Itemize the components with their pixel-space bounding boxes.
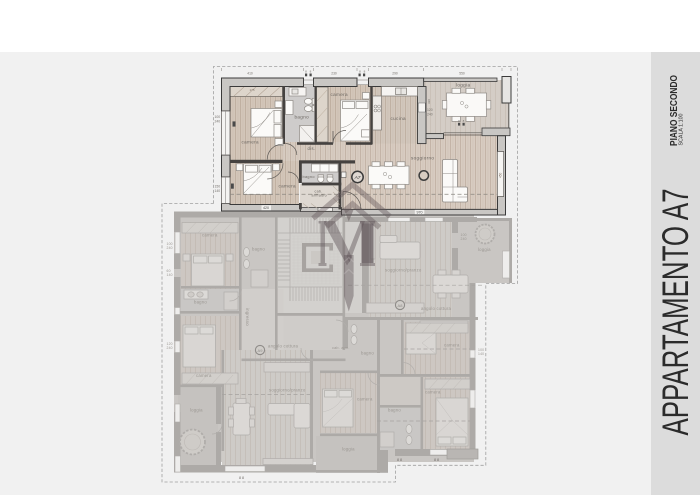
svg-text:cucina: cucina bbox=[391, 116, 406, 121]
svg-text:140: 140 bbox=[167, 273, 173, 277]
svg-text:camera: camera bbox=[357, 397, 373, 402]
svg-text:loggia: loggia bbox=[342, 447, 355, 452]
svg-text:420: 420 bbox=[263, 206, 269, 210]
svg-text:410: 410 bbox=[247, 72, 253, 76]
svg-text:loggia: loggia bbox=[190, 408, 203, 413]
svg-text:240: 240 bbox=[461, 237, 467, 241]
svg-text:SCALA 1:100: SCALA 1:100 bbox=[679, 113, 685, 145]
svg-text:camera: camera bbox=[202, 233, 218, 238]
svg-text:8 8: 8 8 bbox=[239, 476, 244, 480]
svg-text:450: 450 bbox=[499, 172, 503, 178]
svg-text:camera: camera bbox=[331, 92, 349, 97]
svg-text:100: 100 bbox=[215, 115, 221, 119]
svg-text:camera: camera bbox=[425, 390, 441, 395]
svg-text:bagno: bagno bbox=[303, 175, 315, 179]
svg-text:camera: camera bbox=[279, 184, 297, 189]
svg-text:camera: camera bbox=[242, 139, 260, 144]
svg-text:240: 240 bbox=[427, 113, 433, 117]
svg-text:230: 230 bbox=[331, 72, 337, 76]
svg-text:ingresso: ingresso bbox=[245, 308, 250, 326]
svg-text:140: 140 bbox=[478, 352, 484, 356]
svg-text:A8: A8 bbox=[398, 303, 404, 308]
svg-text:loggia: loggia bbox=[478, 247, 491, 252]
svg-text:120: 120 bbox=[427, 108, 433, 112]
svg-text:8 8: 8 8 bbox=[434, 458, 439, 462]
svg-text:soggiorno/pranzo: soggiorno/pranzo bbox=[269, 388, 306, 393]
svg-text:cab. arm.: cab. arm. bbox=[332, 346, 350, 350]
svg-text:loggia: loggia bbox=[456, 83, 470, 88]
svg-text:150: 150 bbox=[215, 185, 221, 189]
svg-text:240: 240 bbox=[167, 246, 173, 250]
svg-text:bagno: bagno bbox=[361, 351, 374, 356]
svg-text:290: 290 bbox=[392, 72, 398, 76]
svg-text:bagno: bagno bbox=[194, 300, 207, 305]
svg-text:8 8: 8 8 bbox=[397, 458, 402, 462]
svg-text:APPARTAMENTO A7: APPARTAMENTO A7 bbox=[654, 189, 696, 436]
svg-text:240: 240 bbox=[167, 346, 173, 350]
svg-text:soggiorno/pranzo: soggiorno/pranzo bbox=[385, 268, 422, 273]
svg-text:A7: A7 bbox=[354, 175, 361, 181]
svg-text:bagno: bagno bbox=[388, 408, 401, 413]
svg-text:angolo cottura: angolo cottura bbox=[421, 306, 451, 311]
svg-text:A9: A9 bbox=[258, 348, 264, 353]
svg-text:175: 175 bbox=[249, 88, 254, 92]
svg-text:dis.: dis. bbox=[308, 146, 316, 151]
svg-text:bagno: bagno bbox=[252, 247, 265, 252]
svg-text:camera: camera bbox=[444, 343, 460, 348]
svg-text:550: 550 bbox=[459, 72, 465, 76]
svg-text:armadio: armadio bbox=[312, 194, 327, 198]
svg-text:240: 240 bbox=[215, 120, 221, 124]
svg-text:soggiorno: soggiorno bbox=[411, 156, 434, 161]
svg-text:bagno: bagno bbox=[295, 115, 310, 120]
svg-text:camera: camera bbox=[196, 373, 212, 378]
svg-text:970: 970 bbox=[417, 211, 423, 215]
svg-text:angolo cottura: angolo cottura bbox=[268, 344, 298, 349]
svg-text:140: 140 bbox=[215, 189, 221, 193]
svg-text:320: 320 bbox=[427, 99, 431, 104]
